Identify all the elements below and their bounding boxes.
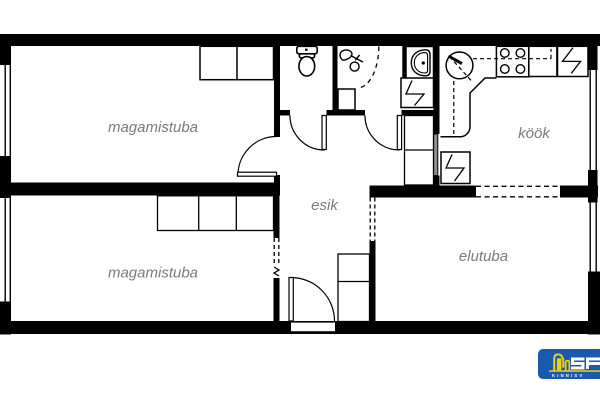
svg-text:magamistuba: magamistuba [108, 119, 198, 136]
svg-text:esik: esik [311, 197, 339, 214]
svg-text:magamistuba: magamistuba [108, 265, 198, 282]
svg-text:elutuba: elutuba [459, 248, 508, 265]
svg-text:köök: köök [518, 125, 551, 142]
svg-text:KINNISV: KINNISV [552, 373, 584, 378]
